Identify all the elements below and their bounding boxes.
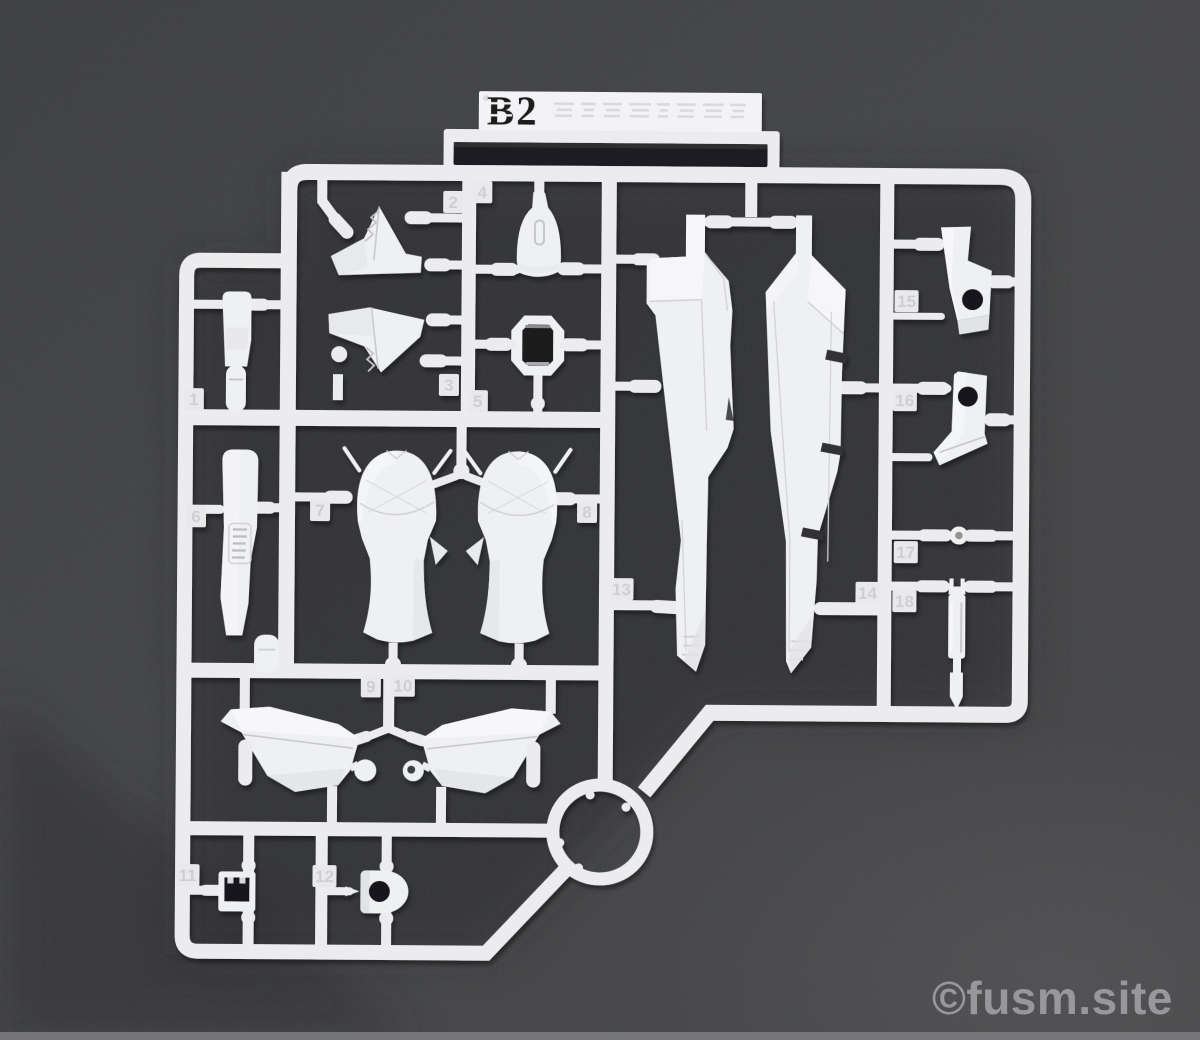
svg-text:14: 14	[858, 584, 878, 603]
svg-text:B2: B2	[487, 87, 539, 133]
svg-text:3: 3	[444, 376, 454, 395]
svg-text:10: 10	[393, 677, 412, 696]
svg-text:7: 7	[315, 501, 325, 520]
svg-text:18: 18	[895, 592, 914, 611]
svg-text:1: 1	[189, 390, 199, 409]
svg-text:17: 17	[896, 543, 915, 562]
svg-text:4: 4	[477, 183, 487, 202]
svg-text:6: 6	[191, 507, 201, 526]
svg-text:11: 11	[178, 866, 196, 885]
svg-text:12: 12	[315, 867, 334, 886]
svg-text:13: 13	[612, 580, 631, 599]
svg-text:9: 9	[366, 677, 376, 696]
svg-text:16: 16	[895, 391, 914, 410]
svg-text:2: 2	[448, 193, 458, 212]
svg-text:©fusm.site: ©fusm.site	[932, 972, 1173, 1024]
svg-text:8: 8	[582, 503, 592, 522]
svg-text:15: 15	[897, 292, 916, 311]
svg-text:5: 5	[473, 392, 483, 411]
